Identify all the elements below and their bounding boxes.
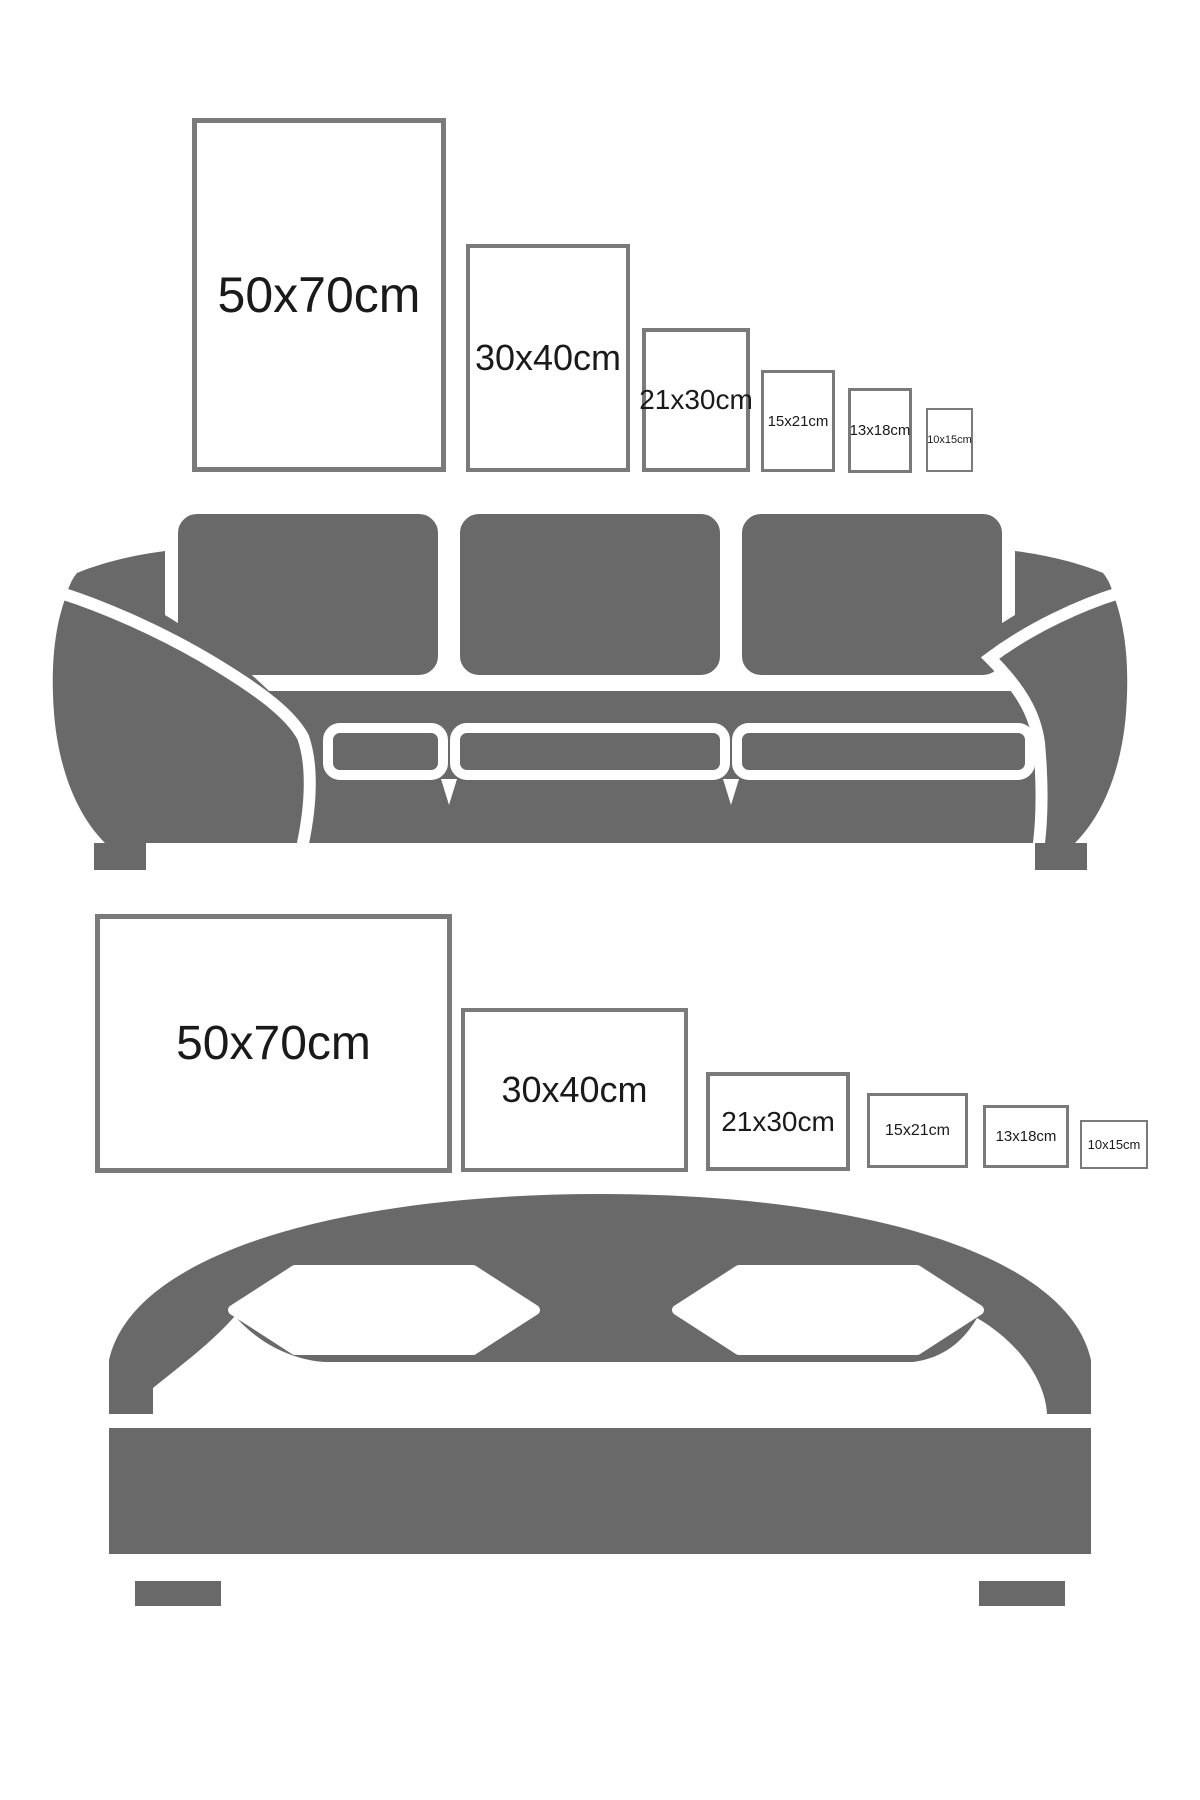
size-guide-infographic: 50x70cm 30x40cm 21x30cm 15x21cm 13x18cm …	[0, 0, 1200, 1800]
bed-base	[109, 1428, 1091, 1554]
frame-portrait-50x70: 50x70cm	[192, 118, 446, 472]
frame-landscape-10x15: 10x15cm	[1080, 1120, 1148, 1169]
frame-portrait-21x30: 21x30cm	[642, 328, 750, 472]
frame-label: 50x70cm	[176, 1016, 371, 1071]
bed-foot	[979, 1581, 1065, 1606]
frame-label: 50x70cm	[218, 266, 421, 324]
frame-label: 13x18cm	[850, 422, 911, 439]
frame-landscape-30x40: 30x40cm	[461, 1008, 688, 1172]
frame-label: 30x40cm	[501, 1069, 647, 1111]
bed-pillow	[233, 1270, 535, 1350]
frame-label: 15x21cm	[885, 1122, 950, 1140]
bed-illustration	[95, 1192, 1105, 1607]
frame-label: 13x18cm	[996, 1128, 1057, 1145]
sofa-foot	[1035, 843, 1087, 870]
frame-label: 10x15cm	[927, 434, 972, 446]
bed-pillow	[677, 1270, 979, 1350]
frame-portrait-10x15: 10x15cm	[926, 408, 973, 472]
frame-label: 21x30cm	[639, 384, 753, 416]
frame-portrait-15x21: 15x21cm	[761, 370, 835, 472]
sofa-seat-cushion	[328, 728, 443, 775]
frame-label: 15x21cm	[768, 413, 829, 430]
frame-landscape-50x70: 50x70cm	[95, 914, 452, 1173]
frame-label: 10x15cm	[1088, 1137, 1141, 1152]
sofa-illustration	[45, 503, 1135, 871]
frame-portrait-13x18: 13x18cm	[848, 388, 912, 473]
frame-label: 21x30cm	[721, 1106, 835, 1138]
frame-portrait-30x40: 30x40cm	[466, 244, 630, 472]
sofa-seat-cushion	[455, 728, 725, 775]
bed-foot	[135, 1581, 221, 1606]
sofa-seat-cushion	[737, 728, 1030, 775]
sofa-foot	[94, 843, 146, 870]
frame-landscape-15x21: 15x21cm	[867, 1093, 968, 1168]
sofa-back-cushion	[455, 509, 725, 680]
frame-landscape-13x18: 13x18cm	[983, 1105, 1069, 1168]
frame-label: 30x40cm	[475, 337, 621, 379]
frame-landscape-21x30: 21x30cm	[706, 1072, 850, 1171]
sofa-back-cushion	[737, 509, 1007, 680]
